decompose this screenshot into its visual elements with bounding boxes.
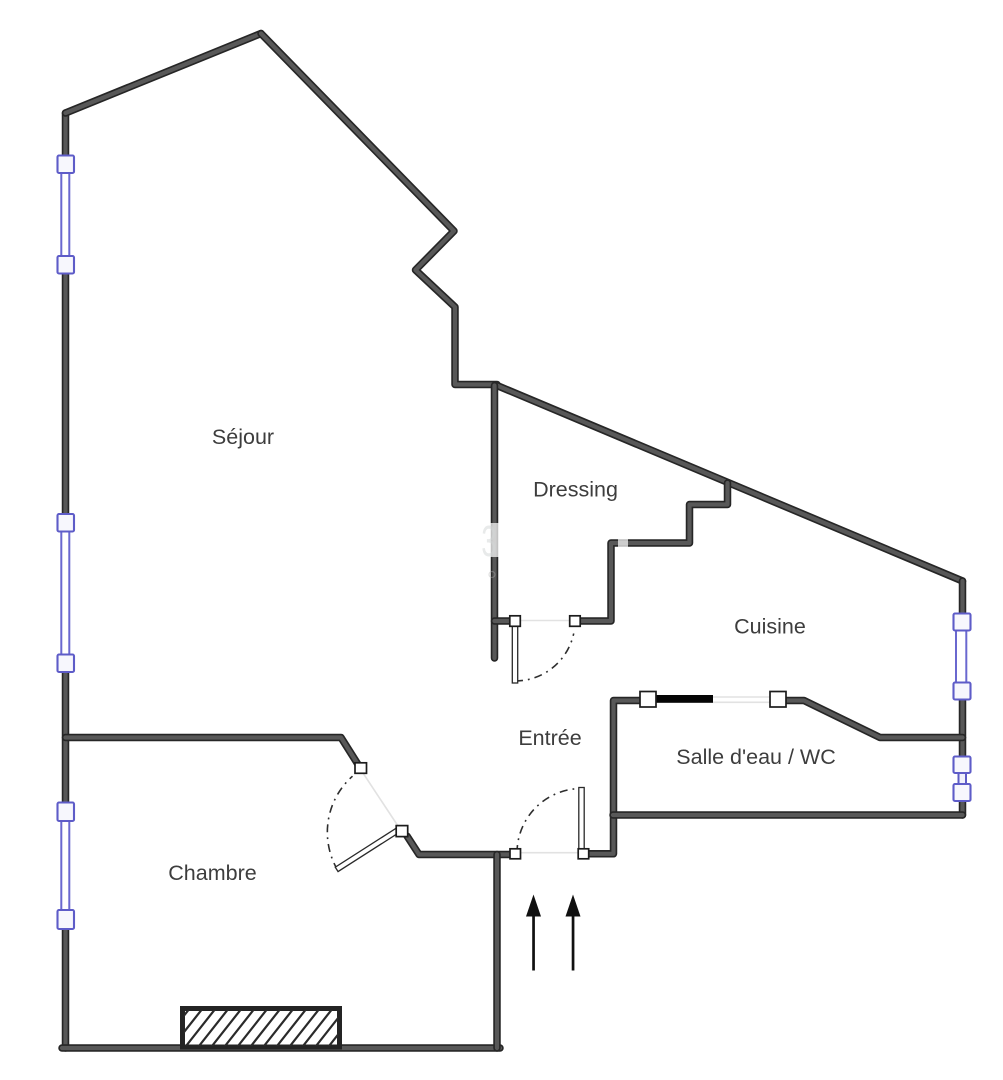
svg-text:Dressing: Dressing <box>533 478 618 502</box>
svg-text:3: 3 <box>481 516 496 565</box>
svg-text:Chambre: Chambre <box>168 861 256 885</box>
svg-text:Séjour: Séjour <box>212 425 274 449</box>
svg-text:Cuisine: Cuisine <box>734 615 806 639</box>
svg-text:Salle d'eau / WC: Salle d'eau / WC <box>676 745 835 769</box>
svg-text:Entrée: Entrée <box>518 726 581 750</box>
